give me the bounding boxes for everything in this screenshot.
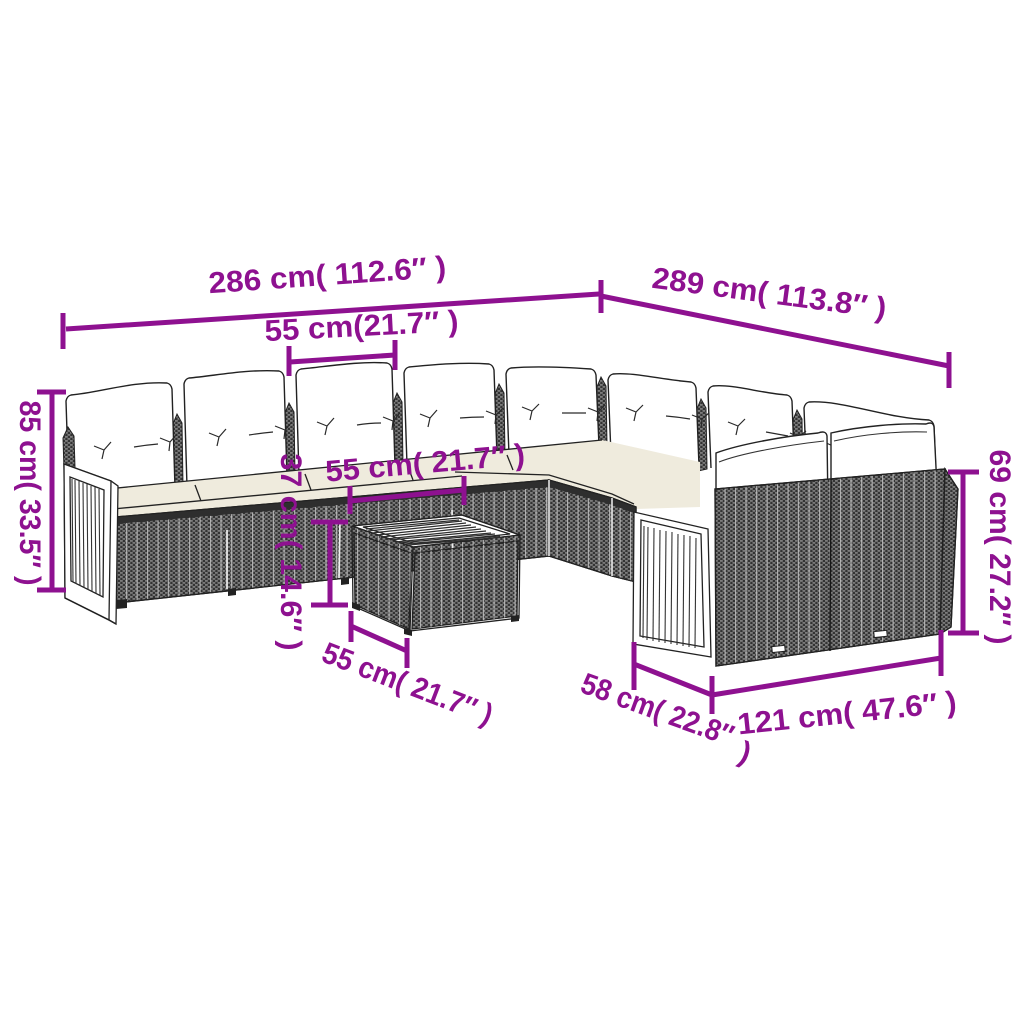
svg-text:37 cm( 14.6″ ): 37 cm( 14.6″ ) bbox=[274, 454, 307, 651]
svg-text:69 cm( 27.2″ ): 69 cm( 27.2″ ) bbox=[983, 450, 1016, 645]
svg-text:85 cm( 33.5″ ): 85 cm( 33.5″ ) bbox=[13, 401, 46, 586]
